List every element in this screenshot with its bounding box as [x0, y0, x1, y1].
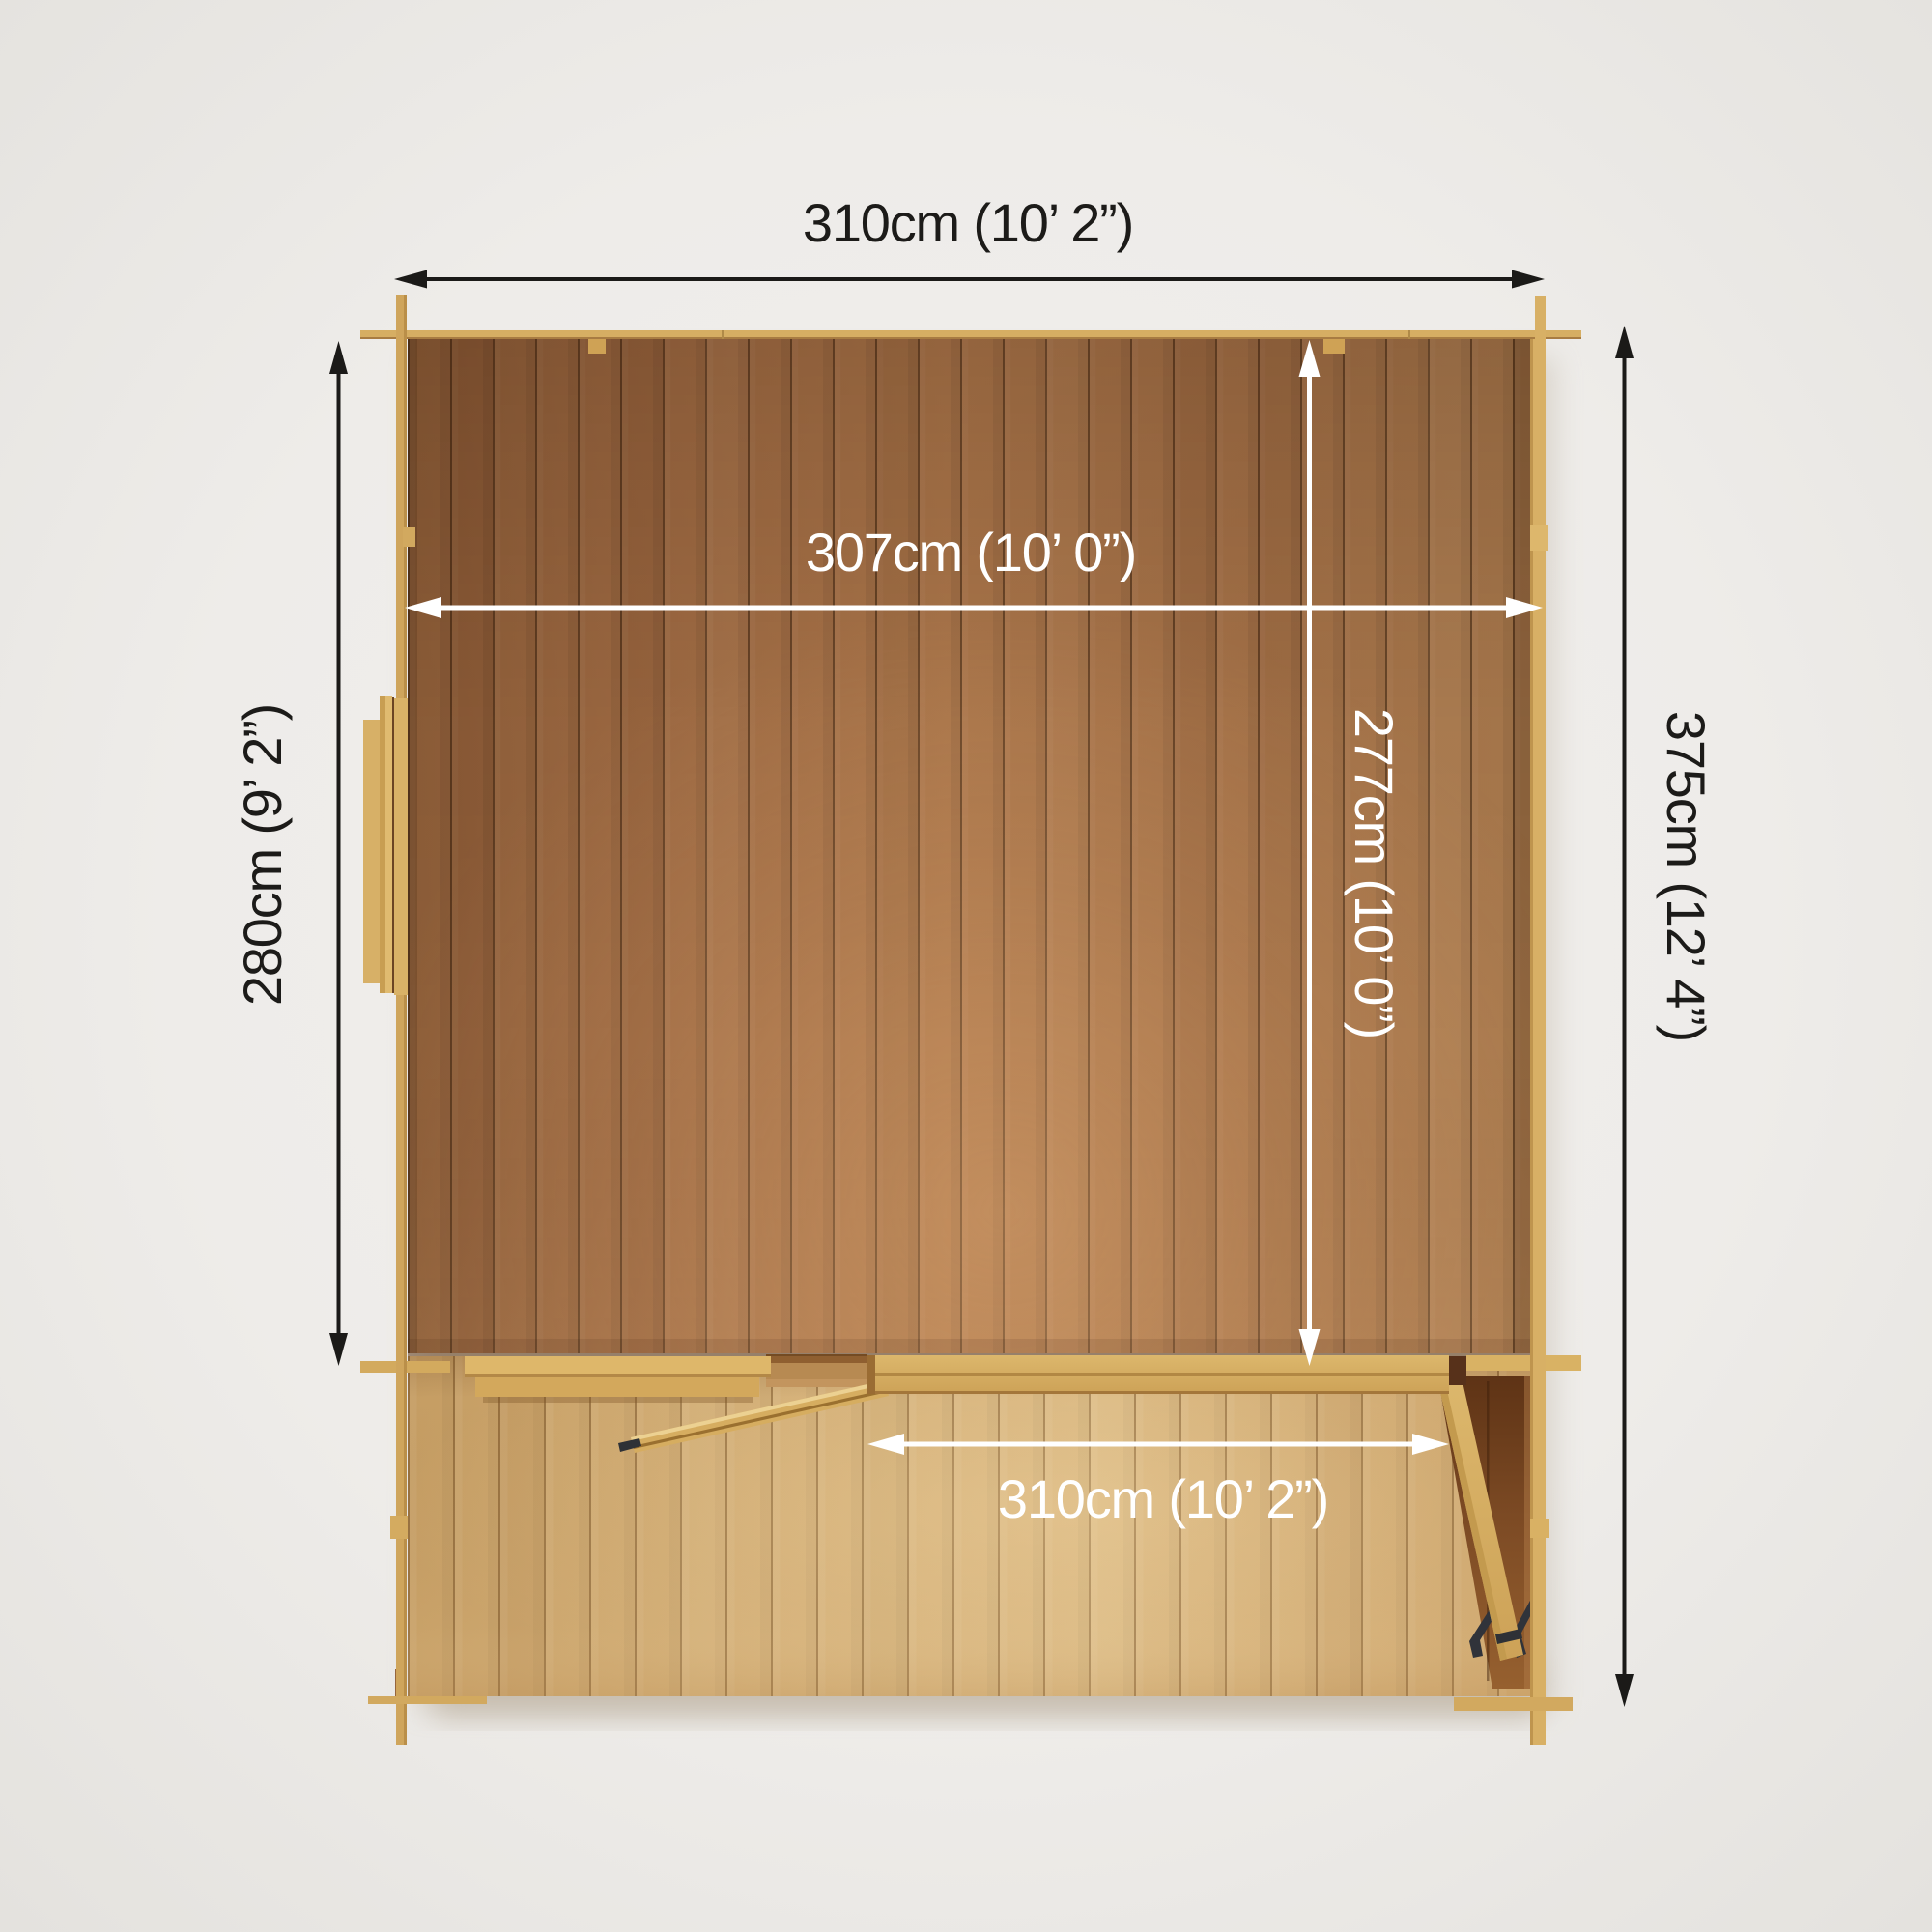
svg-text:310cm (10’ 2”): 310cm (10’ 2”) [998, 1468, 1328, 1529]
svg-text:277cm (10’ 0”): 277cm (10’ 0”) [1344, 708, 1405, 1038]
svg-text:375cm (12’ 4”): 375cm (12’ 4”) [1656, 711, 1717, 1041]
svg-text:280cm (9’ 2”): 280cm (9’ 2”) [232, 704, 293, 1006]
svg-text:310cm (10’ 2”): 310cm (10’ 2”) [803, 192, 1133, 253]
svg-text:307cm (10’ 0”): 307cm (10’ 0”) [806, 522, 1136, 582]
